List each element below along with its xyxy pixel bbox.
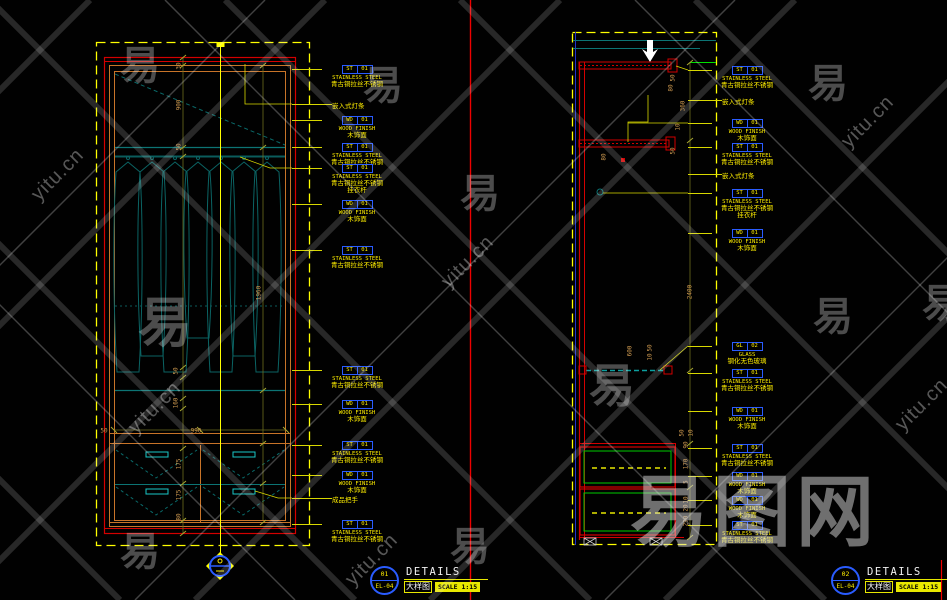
watermark-site-text: yitu.cn [341, 529, 403, 591]
watermark-site-text: yitu.cn [437, 231, 499, 293]
watermark-site-text: yitu.cn [837, 91, 899, 153]
watermark-site-text: yitu.cn [891, 374, 947, 436]
watermark-site-text: yitu.cn [124, 377, 186, 439]
cad-sheet: ST 01 STAINLESS STEEL 青古铜拉丝不锈钢 WD 01 WOO… [0, 0, 947, 600]
watermark-sites: yitu.cnyitu.cnyitu.cnyitu.cnyitu.cnyitu.… [0, 0, 947, 600]
watermark-site-text: yitu.cn [27, 144, 89, 206]
